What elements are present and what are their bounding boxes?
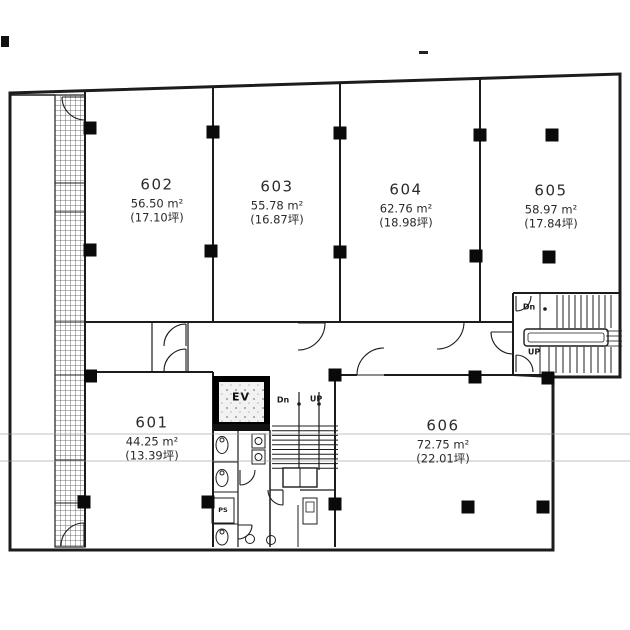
- room-area-tsubo: (17.10坪): [130, 210, 183, 224]
- elevator-label: EV: [232, 391, 250, 404]
- room-area-m2: 44.25 m²: [125, 434, 178, 448]
- elevator: [213, 379, 270, 431]
- room-area-tsubo: (13.39坪): [125, 448, 178, 462]
- room-area-m2: 62.76 m²: [379, 201, 432, 215]
- room-604-label: 604 62.76 m² (18.98坪): [379, 180, 432, 230]
- wc-stall-door: [238, 525, 252, 539]
- stairs-center-up-label: UP: [310, 395, 322, 404]
- room-605-label: 605 58.97 m² (17.84坪): [524, 181, 577, 231]
- balcony-hatch: [55, 91, 85, 547]
- room-area-tsubo: (22.01坪): [416, 451, 469, 465]
- right-staircase: [524, 295, 622, 373]
- stair-lower-door: [516, 355, 533, 372]
- room-area-m2: 55.78 m²: [250, 198, 303, 212]
- room-601-label: 601 44.25 m² (13.39坪): [125, 413, 178, 463]
- room-area-m2: 72.75 m²: [416, 437, 469, 451]
- corridor-door-right: [437, 322, 464, 349]
- room-602-label: 602 56.50 m² (17.10坪): [130, 175, 183, 225]
- room-number: 605: [524, 181, 577, 200]
- room-603-label: 603 55.78 m² (16.87坪): [250, 177, 303, 227]
- wc-door: [240, 470, 255, 485]
- room-number: 606: [416, 416, 469, 435]
- room-area-tsubo: (17.84坪): [524, 216, 577, 230]
- stair-hall-door: [491, 332, 513, 354]
- room-number: 601: [125, 413, 178, 432]
- room-area-m2: 58.97 m²: [524, 202, 577, 216]
- vestibule-door-upper: [164, 324, 186, 346]
- room-606-door: [357, 348, 384, 375]
- floor-plan: 601 44.25 m² (13.39坪) 602 56.50 m² (17.1…: [0, 0, 630, 630]
- stairs-right-down-label: Dn: [523, 303, 535, 312]
- room-number: 603: [250, 177, 303, 196]
- partition-walls: [85, 78, 620, 547]
- corridor-door-center: [298, 323, 325, 350]
- room-606-label: 606 72.75 m² (22.01坪): [416, 416, 469, 466]
- room-number: 602: [130, 175, 183, 194]
- stairs-right-up-label: UP: [528, 348, 540, 357]
- pipe-space-label: PS: [218, 506, 227, 514]
- room-area-tsubo: (18.98坪): [379, 215, 432, 229]
- stairs-center-down-label: Dn: [277, 396, 289, 405]
- room-number: 604: [379, 180, 432, 199]
- central-staircase: [272, 392, 338, 487]
- room-area-tsubo: (16.87坪): [250, 212, 303, 226]
- vestibule-door-lower: [164, 349, 186, 371]
- floorplan-drawing: [0, 0, 630, 630]
- room-area-m2: 56.50 m²: [130, 196, 183, 210]
